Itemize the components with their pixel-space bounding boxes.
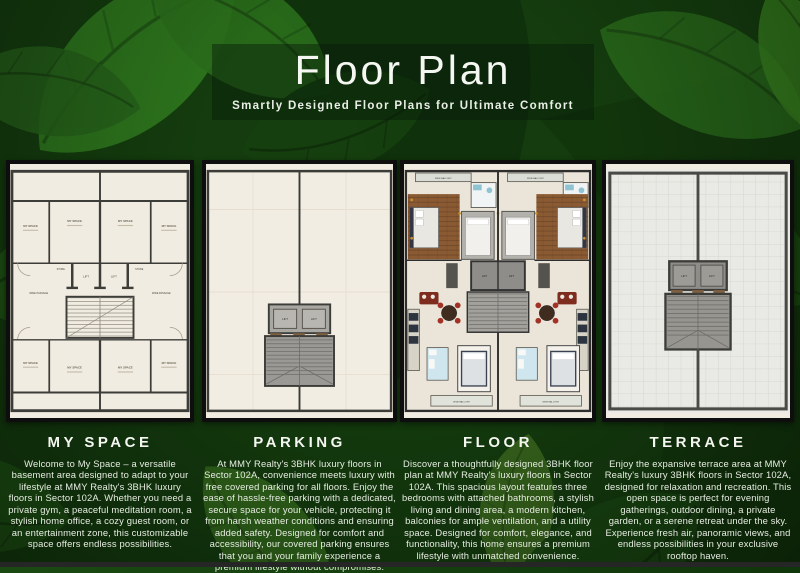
header-band: Floor Plan Smartly Designed Floor Plans … (212, 44, 594, 120)
furnished-floor-plan-image: WIDE BALCONY WIDE BALCONY (400, 160, 596, 422)
page-title: Floor Plan (295, 50, 512, 91)
basement-floor-plan-image: LIFT LIFT STORE STORE WIDE PASSAGE WIDE … (6, 160, 194, 422)
section-parking: LIFT LIFT PARKING At MMY Realty's 3BHK l… (202, 160, 397, 573)
parking-floor-plan-image: LIFT LIFT (202, 160, 397, 422)
lift-label: LIFT (709, 274, 715, 278)
section-description: At MMY Realty's 3BHK luxury floors in Se… (203, 458, 396, 573)
section-description: Welcome to My Space – a versatile baseme… (7, 458, 193, 550)
balcony-label: WIDE BALCONY (527, 177, 544, 180)
lift-label: LIFT (83, 275, 89, 279)
section-title: FLOOR (400, 434, 596, 451)
room-label: MY SPACE (23, 224, 38, 228)
room-label: MY SPACE (162, 224, 177, 228)
section-description: Discover a thoughtfully designed 3BHK fl… (401, 458, 595, 561)
room-label: MY SPACE (118, 219, 133, 223)
balcony-label: WIDE BALCONY (435, 177, 452, 180)
store-label: STORE (135, 268, 144, 271)
lift-label: LIFT (509, 275, 515, 278)
room-label: MY SPACE (23, 361, 38, 365)
section-title: TERRACE (602, 434, 794, 451)
lift-label: LIFT (311, 317, 317, 321)
lift-label: LIFT (681, 274, 687, 278)
lift-label: LIFT (482, 275, 488, 278)
passage-label: WIDE PASSAGE (152, 292, 171, 295)
section-title: PARKING (202, 434, 397, 451)
balcony-label: WIDE BALCONY (453, 400, 470, 403)
lift-label: LIFT (111, 275, 117, 279)
section-floor: WIDE BALCONY WIDE BALCONY (400, 160, 596, 561)
room-label: MY SPACE (162, 361, 177, 365)
section-terrace: LIFT LIFT TERRACE Enjoy the expansive te… (602, 160, 794, 561)
balcony-label: WIDE BALCONY (542, 400, 559, 403)
section-title: MY SPACE (6, 434, 194, 451)
room-label: MY SPACE (118, 366, 133, 370)
terrace-floor-plan-image: LIFT LIFT (602, 160, 794, 422)
room-label: MY SPACE (67, 366, 82, 370)
page-subtitle: Smartly Designed Floor Plans for Ultimat… (232, 100, 574, 112)
store-label: STORE (57, 268, 66, 271)
lift-label: LIFT (282, 317, 288, 321)
room-label: MY SPACE (67, 219, 82, 223)
bottom-border-strip (0, 562, 800, 567)
section-my-space: LIFT LIFT STORE STORE WIDE PASSAGE WIDE … (6, 160, 194, 550)
section-description: Enjoy the expansive terrace area at MMY … (603, 458, 793, 561)
passage-label: WIDE PASSAGE (29, 292, 48, 295)
